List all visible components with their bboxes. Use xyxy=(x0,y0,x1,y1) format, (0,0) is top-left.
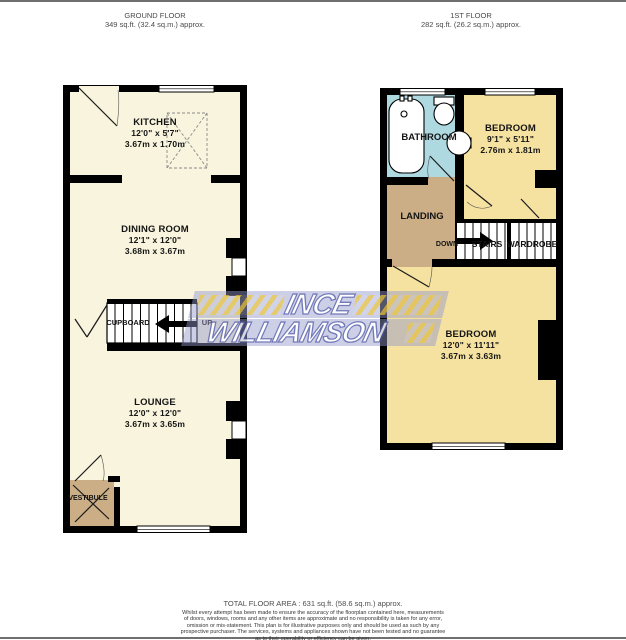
first-floor-area: 282 sq.ft. (26.2 sq.m.) approx. xyxy=(381,20,561,29)
watermark-name-line2: WILLIAMSON xyxy=(184,320,406,346)
watermark-stripes-icon xyxy=(195,295,285,315)
disclaimer-line: as to their operability or efficiency ca… xyxy=(113,636,513,640)
kitchen-window-icon xyxy=(159,86,214,93)
ground-floor-header: GROUND FLOOR 349 sq.ft. (32.4 sq.m.) app… xyxy=(65,11,245,29)
watermark-stripes-icon xyxy=(352,295,442,315)
vestibule-label: VESTIBULE xyxy=(62,495,114,503)
watermark-stripes-icon xyxy=(404,323,435,343)
lounge-label: LOUNGE 12'0" x 12'0" 3.67m x 3.65m xyxy=(85,397,225,430)
ground-floor-title: GROUND FLOOR xyxy=(65,11,245,20)
landing-label: LANDING xyxy=(384,213,460,221)
total-floor-area: TOTAL FLOOR AREA : 631 sq.ft. (58.6 sq.m… xyxy=(63,599,563,608)
lounge-window-icon xyxy=(137,526,210,533)
top-border-line xyxy=(0,0,626,2)
floorplan-page: GROUND FLOOR 349 sq.ft. (32.4 sq.m.) app… xyxy=(0,0,626,640)
cupboard-label: CUPBOARD xyxy=(98,319,158,327)
bathroom-window-icon xyxy=(400,89,445,96)
bathroom-label: BATHROOM xyxy=(390,134,468,142)
wardrobe-label: WARDROBE xyxy=(506,240,558,248)
first-floor-header: 1ST FLOOR 282 sq.ft. (26.2 sq.m.) approx… xyxy=(381,11,561,29)
watermark-row-2: WILLIAMSON xyxy=(181,319,442,346)
agency-watermark-logo: INCE WILLIAMSON xyxy=(181,291,449,346)
watermark-name-line1: INCE xyxy=(283,292,355,318)
toilet-icon xyxy=(434,97,454,125)
bedroom1-label: BEDROOM 9'1" x 5'11" 2.76m x 1.81m xyxy=(458,123,563,156)
watermark-row-1: INCE xyxy=(188,291,449,318)
dining-room-label: DINING ROOM 12'1" x 12'0" 3.68m x 3.67m xyxy=(85,224,225,257)
bedroom1-window-icon xyxy=(485,89,535,96)
ground-floor-area: 349 sq.ft. (32.4 sq.m.) approx. xyxy=(65,20,245,29)
kitchen-label: KITCHEN 12'0" x 5'7" 3.67m x 1.70m xyxy=(85,117,225,150)
bedroom2-window-icon xyxy=(432,443,505,450)
disclaimer: Whilst every attempt has been made to en… xyxy=(113,610,513,640)
first-floor-title: 1ST FLOOR xyxy=(381,11,561,20)
